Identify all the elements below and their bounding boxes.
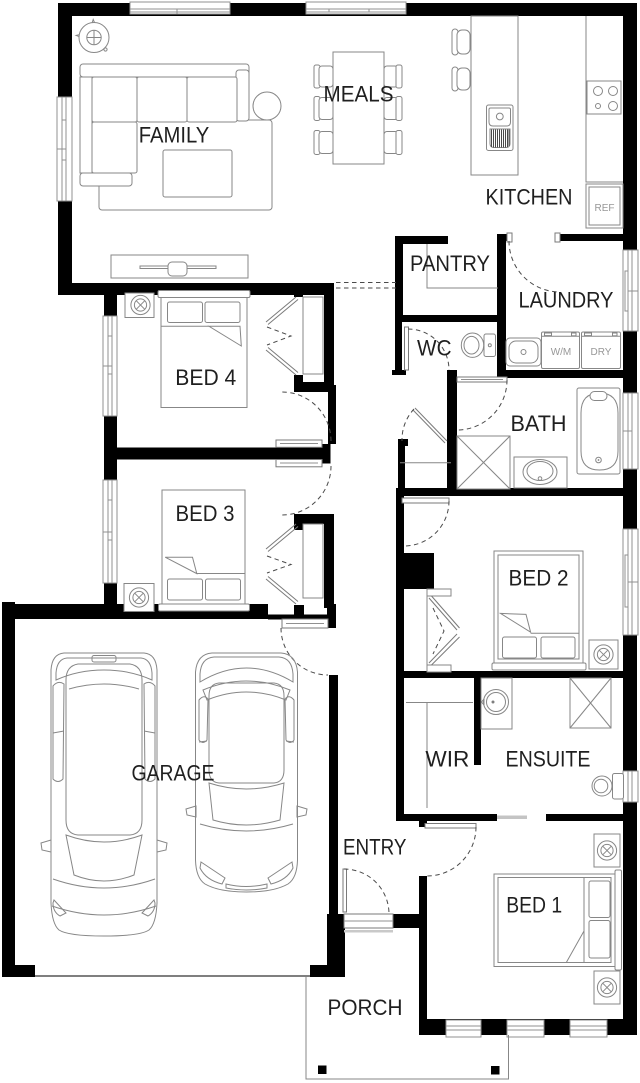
svg-text:KITCHEN: KITCHEN (486, 185, 573, 210)
svg-text:ENTRY: ENTRY (343, 835, 407, 860)
svg-text:REF: REF (595, 203, 615, 214)
svg-text:FAMILY: FAMILY (139, 123, 210, 148)
svg-text:BED 3: BED 3 (176, 501, 235, 526)
svg-text:WIR: WIR (425, 747, 469, 772)
svg-text:MEALS: MEALS (324, 82, 394, 107)
svg-text:W/M: W/M (551, 347, 572, 358)
svg-text:PANTRY: PANTRY (410, 251, 490, 276)
svg-text:PORCH: PORCH (328, 995, 403, 1020)
svg-text:GARAGE: GARAGE (132, 761, 215, 786)
svg-text:BATH: BATH (511, 411, 567, 436)
svg-text:ENSUITE: ENSUITE (506, 747, 591, 772)
svg-text:BED 4: BED 4 (175, 365, 236, 390)
svg-text:BED 2: BED 2 (509, 566, 569, 591)
svg-text:BED 1: BED 1 (506, 893, 562, 918)
svg-text:WC: WC (417, 336, 452, 361)
svg-text:DRY: DRY (591, 347, 612, 358)
svg-text:LAUNDRY: LAUNDRY (519, 288, 614, 313)
